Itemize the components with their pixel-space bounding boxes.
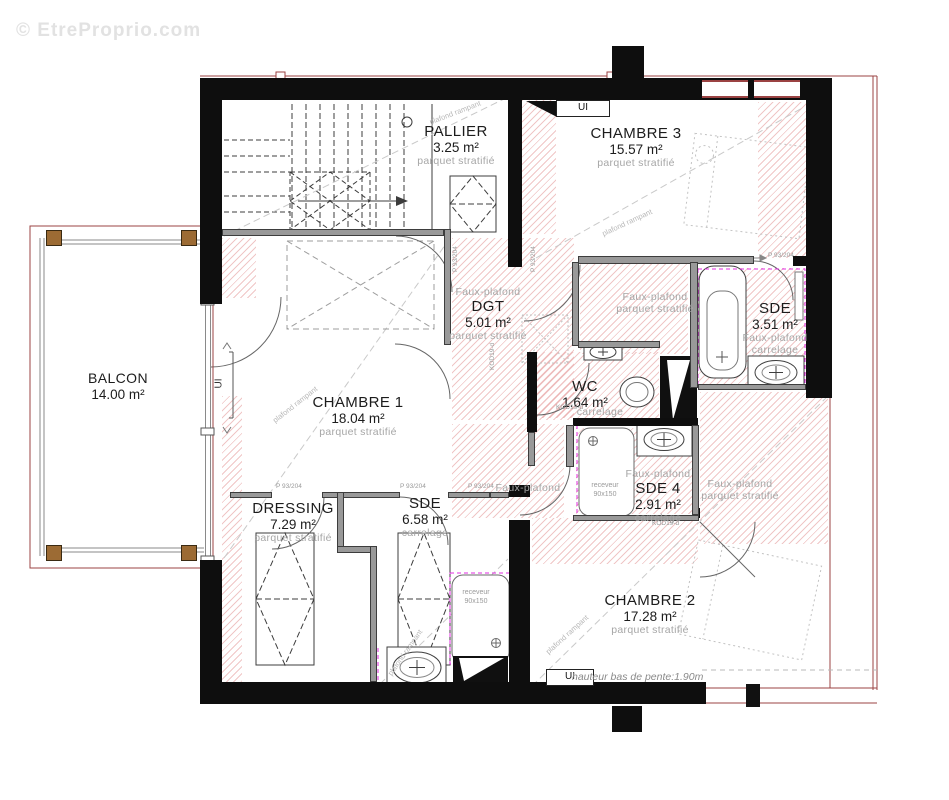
bathtub-icon [699, 266, 746, 378]
door-size-label: P 93/204 [768, 252, 794, 259]
wall-segment [573, 418, 698, 426]
door-size-label: P 93/204 [530, 246, 537, 272]
ui-marker: UI [556, 100, 610, 117]
wall-segment [528, 432, 535, 466]
fixture-code-label: KOD19-d [652, 520, 679, 527]
wall-segment [690, 262, 698, 388]
wall-segment [200, 78, 222, 304]
roof-post [746, 684, 760, 707]
room-label-sde4: Faux-plafond SDE 4 2.91 m² carrelage [626, 468, 691, 524]
ceiling-label-couloir: Faux-plafond parquet stratifié [616, 291, 693, 315]
roof-slope-marker [453, 656, 508, 685]
furniture-outline [287, 241, 434, 329]
floor-plan: © EtreProprio.com [0, 0, 949, 800]
wood-post [46, 545, 62, 561]
wall-segment [200, 682, 706, 704]
room-label-dressing: DRESSING 7.29 m² parquet stratifié [252, 500, 334, 544]
door-size-label: P 93/204 [468, 483, 494, 490]
wall-segment [698, 384, 806, 390]
window [754, 80, 800, 98]
ui-marker: UI [214, 379, 225, 389]
chimney [612, 46, 644, 80]
wall-segment [793, 256, 806, 266]
shower-size-label: receveur 90x150 [462, 588, 489, 606]
fixture-code-label: KOD19-d [489, 343, 496, 370]
window [702, 80, 748, 98]
toilet-icon [620, 377, 654, 407]
door-size-label: P 93/204 [452, 246, 459, 272]
wall-segment [448, 492, 490, 498]
ceiling-label-left: Faux-plafond [496, 482, 561, 494]
room-label-balcon: BALCON 14.00 m² [88, 370, 148, 402]
wall-segment [578, 341, 660, 348]
wall-segment [508, 80, 522, 267]
door-size-label: P 93/204 [400, 483, 426, 490]
wall-segment [509, 520, 530, 684]
sink-icon [637, 423, 692, 456]
wall-segment [692, 425, 699, 515]
room-label-dgt: Faux-plafond DGT 5.01 m² parquet stratif… [449, 286, 526, 342]
wall-segment [578, 256, 754, 264]
chimney [612, 706, 642, 732]
roof-slope-marker [526, 101, 557, 117]
shower-size-label: receveur 90x150 [591, 481, 618, 499]
wood-post [181, 230, 197, 246]
staircase [224, 104, 432, 230]
wall-segment [806, 78, 832, 398]
wall-segment [370, 546, 377, 682]
room-label-chambre3: CHAMBRE 3 15.57 m² parquet stratifié [590, 125, 681, 169]
bed-outline [678, 133, 821, 660]
wood-post [46, 230, 62, 246]
wall-segment [572, 262, 579, 346]
wall-segment [322, 492, 400, 498]
wall-segment [337, 492, 344, 552]
room-label-chambre1: CHAMBRE 1 18.04 m² parquet stratifié [312, 394, 403, 438]
wall-segment [222, 229, 444, 236]
door-size-label: P 93/204 [276, 483, 302, 490]
floor-label-wc: carrelage [577, 406, 623, 418]
room-label-pallier: PALLIER 3.25 m² parquet stratifié [417, 123, 494, 167]
room-label-sde-bas: SDE 6.58 m² carrelage [402, 495, 448, 539]
wall-segment [230, 492, 272, 498]
wall-segment [566, 425, 574, 467]
ceiling-label-right: Faux-plafond parquet stratifié [701, 478, 778, 502]
fixture-code-label: KOD19-d [556, 404, 583, 411]
wood-post [181, 545, 197, 561]
slope-height-note: hauteur bas de pente:1.90m [572, 671, 703, 683]
room-label-chambre2: CHAMBRE 2 17.28 m² parquet stratifié [604, 592, 695, 636]
wall-segment [527, 352, 537, 432]
window [201, 298, 233, 563]
room-label-sde: SDE 3.51 m² Faux-plafond carrelage [743, 300, 808, 356]
